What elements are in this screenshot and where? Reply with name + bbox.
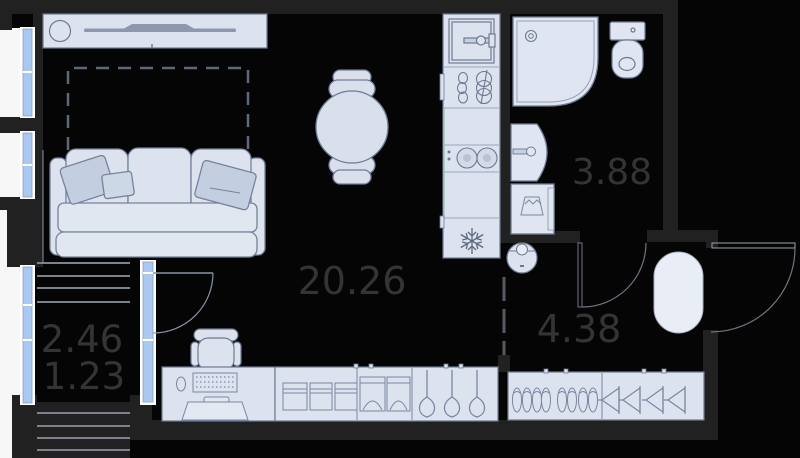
floor-plan: 2.46 1.23 — [0, 0, 800, 458]
hallway-area-label: 4.38 — [537, 307, 622, 351]
toilet-icon — [610, 22, 645, 78]
balcony-area-reduced-label: 1.23 — [43, 355, 125, 398]
kitchen-unit — [440, 14, 500, 258]
desk-icon — [162, 367, 275, 421]
living-area-label: 20.26 — [298, 259, 407, 303]
tv-stand-icon — [43, 14, 267, 48]
balcony-glazing-icon — [20, 265, 35, 405]
window-2-icon — [20, 131, 35, 199]
desk-chair-icon — [191, 329, 241, 370]
handle-icon — [440, 216, 444, 228]
entry-rug-icon — [654, 252, 703, 333]
washing-machine-icon — [511, 184, 554, 234]
sofa-icon — [50, 148, 265, 257]
bathroom-area-label: 3.88 — [572, 152, 652, 193]
shoe-cabinet-icon — [508, 369, 704, 420]
robot-vacuum-icon — [507, 243, 537, 273]
window-1-icon — [20, 27, 35, 118]
wardrobe-icon — [275, 364, 498, 421]
tv-icon — [84, 29, 236, 33]
floor-plan-svg: 2.46 1.23 — [0, 0, 800, 458]
chair-icon — [333, 170, 371, 184]
shower-icon — [513, 17, 598, 106]
handle-icon — [440, 74, 444, 100]
bathroom-sink-icon — [511, 124, 547, 181]
